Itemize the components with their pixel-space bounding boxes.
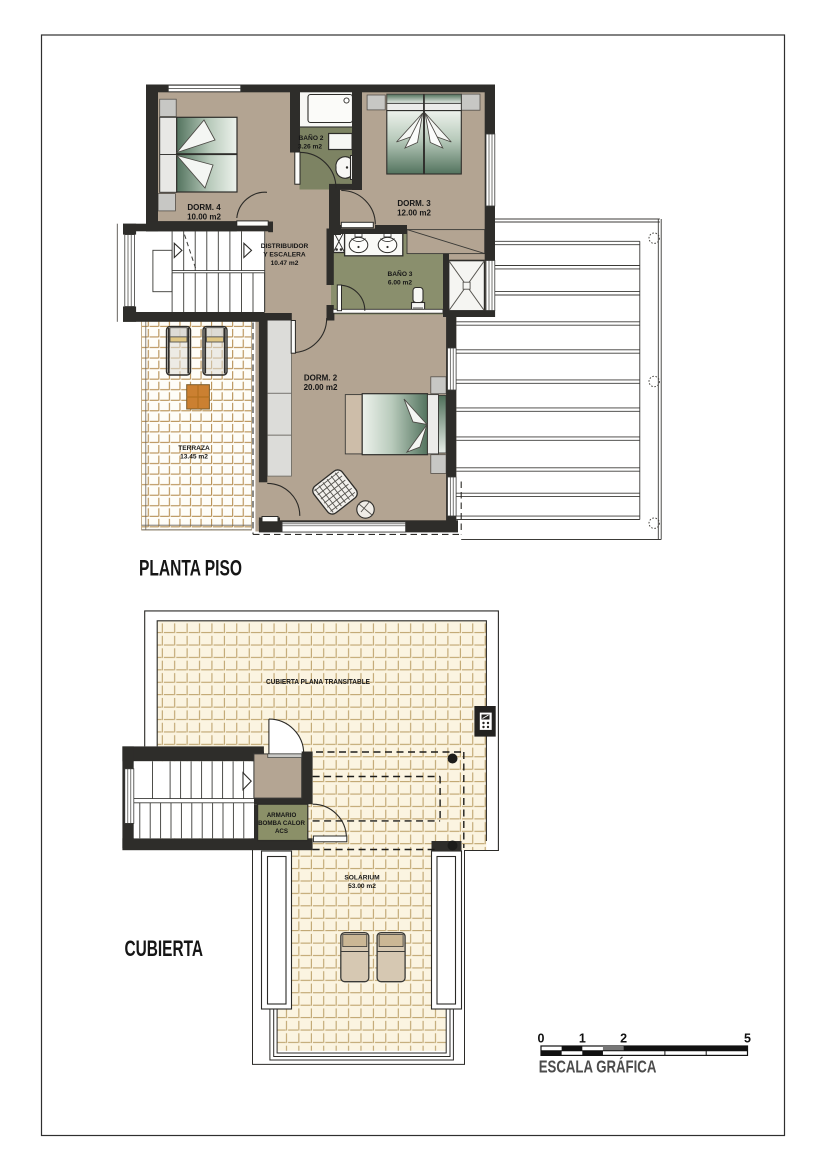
svg-text:BAÑO 3: BAÑO 3 [388, 269, 413, 278]
svg-text:12.00 m2: 12.00 m2 [397, 209, 431, 218]
svg-text:BAÑO 2: BAÑO 2 [299, 133, 324, 142]
svg-text:20.00 m2: 20.00 m2 [304, 383, 338, 392]
svg-text:10.00 m2: 10.00 m2 [187, 213, 221, 222]
svg-text:Y ESCALERA: Y ESCALERA [263, 252, 306, 259]
svg-text:ARMARIO: ARMARIO [267, 812, 297, 819]
svg-text:13.45 m2: 13.45 m2 [180, 454, 208, 461]
svg-text:10.47 m2: 10.47 m2 [271, 260, 299, 267]
svg-text:2: 2 [620, 1032, 627, 1046]
svg-text:CUBIERTA PLANA TRANSITABLE: CUBIERTA PLANA TRANSITABLE [266, 679, 370, 686]
svg-text:ESCALA GRÁFICA: ESCALA GRÁFICA [539, 1056, 657, 1077]
svg-text:0: 0 [538, 1032, 545, 1046]
svg-text:DORM. 2: DORM. 2 [304, 374, 338, 383]
svg-text:53.00 m2: 53.00 m2 [348, 883, 376, 890]
svg-text:DORM. 3: DORM. 3 [397, 199, 431, 208]
svg-text:SOLARIUM: SOLARIUM [344, 875, 380, 882]
svg-text:ACS: ACS [275, 828, 288, 835]
svg-text:BOMBA CALOR: BOMBA CALOR [258, 820, 305, 827]
svg-text:6.00 m2: 6.00 m2 [388, 280, 413, 287]
svg-text:TERRAZA: TERRAZA [178, 445, 210, 452]
svg-text:1: 1 [579, 1032, 586, 1046]
svg-text:CUBIERTA: CUBIERTA [125, 936, 204, 961]
svg-text:DORM. 4: DORM. 4 [187, 203, 221, 212]
svg-text:5: 5 [744, 1032, 751, 1046]
svg-text:PLANTA PISO: PLANTA PISO [139, 556, 242, 581]
svg-text:DISTRIBUIDOR: DISTRIBUIDOR [261, 243, 309, 250]
svg-text:3.26 m2: 3.26 m2 [298, 144, 323, 151]
